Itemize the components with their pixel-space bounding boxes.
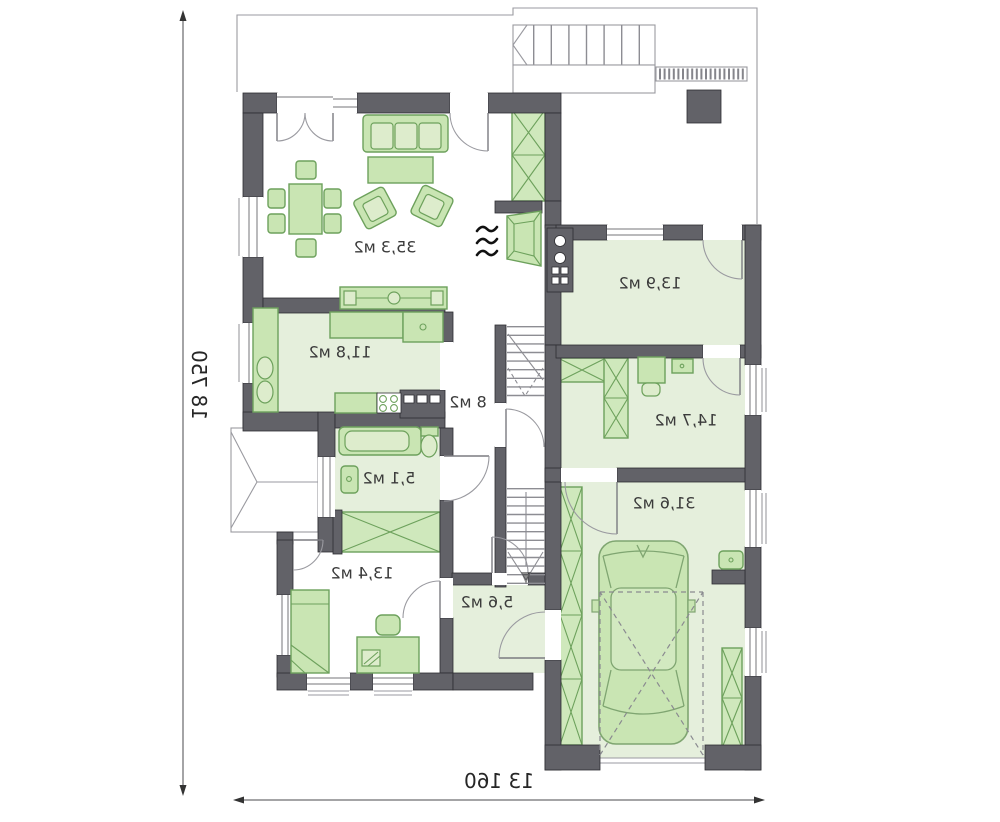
bedroom-bottom-window-2 [373, 673, 413, 690]
side-table-14-7 [672, 359, 693, 373]
garage-gate-sill [600, 758, 705, 763]
sofa [363, 115, 448, 152]
armchair-1 [352, 186, 397, 230]
heating-waves-icon [477, 227, 497, 255]
garage-window-1 [745, 490, 761, 547]
bedroom-door [403, 578, 453, 618]
bedroom-bottom-window-1 [307, 673, 350, 690]
bathroom-door [440, 456, 489, 501]
car [592, 541, 695, 744]
stove [377, 393, 401, 413]
stairs-break-line [513, 25, 527, 65]
bed [291, 590, 329, 673]
kitchen-opening [440, 342, 453, 390]
living-room-furniture [268, 115, 454, 309]
garage-right-wardrobe [722, 648, 742, 748]
terrace-french-door [277, 93, 333, 141]
living-room-label: 35,3 м2 [354, 238, 417, 257]
car-mirror-left [592, 600, 599, 612]
chair-14-7 [642, 383, 660, 396]
bedroom-furniture [291, 590, 419, 673]
room-13-9-floor [561, 240, 745, 350]
kitchen-appliance-block [400, 390, 445, 418]
toilet [421, 427, 438, 457]
fireplace [507, 211, 541, 266]
stair-door [495, 403, 544, 447]
garage-sink [719, 551, 743, 569]
width-dimension-label: 13 160 [464, 769, 534, 793]
room-13-9-window [607, 225, 663, 240]
dining-set [268, 161, 341, 257]
bathroom-porch-window [318, 457, 335, 517]
hall-label: 8 м2 [449, 393, 487, 412]
living-left-window [243, 197, 263, 257]
room-14-7-label: 14,7 м2 [655, 411, 718, 430]
height-dimension-label: 18 750 [187, 350, 211, 420]
desk-chair [376, 615, 400, 635]
kitchen-island [403, 312, 443, 342]
corridor-wardrobe [340, 512, 440, 552]
living-top-door [450, 93, 488, 151]
living-top-window [333, 93, 357, 113]
room-14-7-wardrobe-v [604, 358, 628, 438]
washbasin [341, 466, 358, 493]
garage-label: 31,6 м2 [633, 494, 696, 513]
living-wardrobe [512, 110, 545, 201]
entrance-porch [231, 428, 318, 532]
floor-plan-svg: 35,3 м2 11,8 м2 8 м2 5,1 м2 13,4 м2 5,6 … [0, 0, 1000, 822]
kitchen-counter-top [330, 312, 403, 338]
desk-14-7 [638, 357, 665, 383]
dimension-horizontal: 13 160 [233, 769, 765, 804]
armchair-2 [410, 184, 455, 228]
kitchen-label: 11,8 м2 [309, 343, 372, 362]
desk-accessory [362, 650, 380, 666]
staircase [508, 326, 543, 584]
room-14-7-wardrobe-h [558, 358, 606, 382]
garage-left-wardrobe [560, 487, 582, 745]
right-window-sills [762, 368, 766, 673]
kitchen-counter-bottom [335, 393, 377, 413]
bathtub [339, 427, 421, 455]
dimension-vertical: 18 750 [180, 10, 212, 796]
bedroom-label: 13,4 м2 [331, 564, 394, 583]
chimney-block [547, 228, 573, 292]
room-13-9-label: 13,9 м2 [619, 274, 682, 293]
garage-window-2 [745, 628, 761, 676]
hallway-label: 5,6 м2 [461, 593, 514, 612]
bathroom-label: 5,1 м2 [363, 469, 416, 488]
bottom-window-sills [308, 691, 412, 695]
coffee-table [368, 157, 433, 183]
sideboard [340, 287, 447, 309]
room-14-7-window [745, 365, 761, 415]
pillar [687, 90, 721, 123]
floor-plan-page: 35,3 м2 11,8 м2 8 м2 5,1 м2 13,4 м2 5,6 … [0, 0, 1000, 822]
